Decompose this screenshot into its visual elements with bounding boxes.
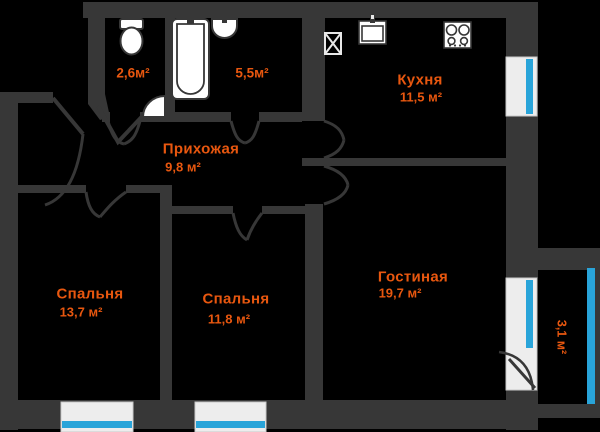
wall-bath-kitchen [302,18,325,121]
floor-plan: 2,6м² 5,5м² Кухня 11,5 м² Прихожая 9,8 м… [0,0,600,432]
wc-door-swing-icon [143,96,165,117]
entry-door-swing-icon [45,134,83,205]
wall-living-left [305,204,323,400]
bedroom2-doorway-arch-icon [233,213,262,240]
living-doorway-arch-icon [324,166,348,204]
entry-door-leaf-icon [53,98,83,134]
wall-bedroom1-top-a [18,185,86,193]
wall-wc-left [88,18,105,96]
kitchen-window-icon [506,57,537,116]
wall-left [0,92,18,430]
wall-balcony-right [595,268,600,404]
vent-shaft-icon [325,33,341,54]
room-area-bedroom1: 13,7 м² [60,306,103,319]
wall-wet-bottom-c [259,112,302,122]
wall-bedroom-partition [160,185,172,400]
room-area-bedroom2: 11,8 м² [208,313,250,326]
room-area-hallway: 9,8 м² [165,161,201,174]
floor-plan-drawing [0,0,600,432]
wall-bedroom1-top-b [126,185,160,193]
balcony-door-icon [499,278,537,390]
wall-top [83,2,538,18]
room-area-kitchen: 11,5 м² [400,91,442,104]
wall-balcony-top [538,248,600,270]
bedroom1-doorway-arch-icon [86,192,126,217]
toilet-icon [120,19,143,55]
wall-bedroom2-top-b [262,206,305,214]
wall-bedroom2-top-a [172,206,233,214]
bedroom1-window-icon [61,402,133,432]
room-label-hallway: Прихожая [163,142,239,157]
kitchen-sink-icon [359,15,386,44]
wall-kitchen-bottom [302,158,507,166]
room-label-bedroom2: Спальня [203,292,270,307]
wall-right-upper [506,2,538,278]
room-label-living: Гостиная [378,270,448,285]
room-area-balcony: 3,1 м² [555,320,568,354]
room-area-bathroom: 5,5м² [235,66,268,80]
bathtub-icon [172,19,209,99]
balcony-glazing-icon [587,268,595,404]
washbasin-icon [212,19,237,38]
room-label-kitchen: Кухня [397,73,442,88]
kitchen-doorway-arch-icon [324,121,344,158]
bedroom2-window-icon [195,402,266,432]
stove-icon [444,22,471,48]
wall-balcony-bottom [538,404,600,418]
wall-entry-stub [0,92,53,103]
room-area-living: 19,7 м² [379,287,422,300]
room-area-wc: 2,6м² [116,66,149,80]
room-label-bedroom1: Спальня [57,287,124,302]
